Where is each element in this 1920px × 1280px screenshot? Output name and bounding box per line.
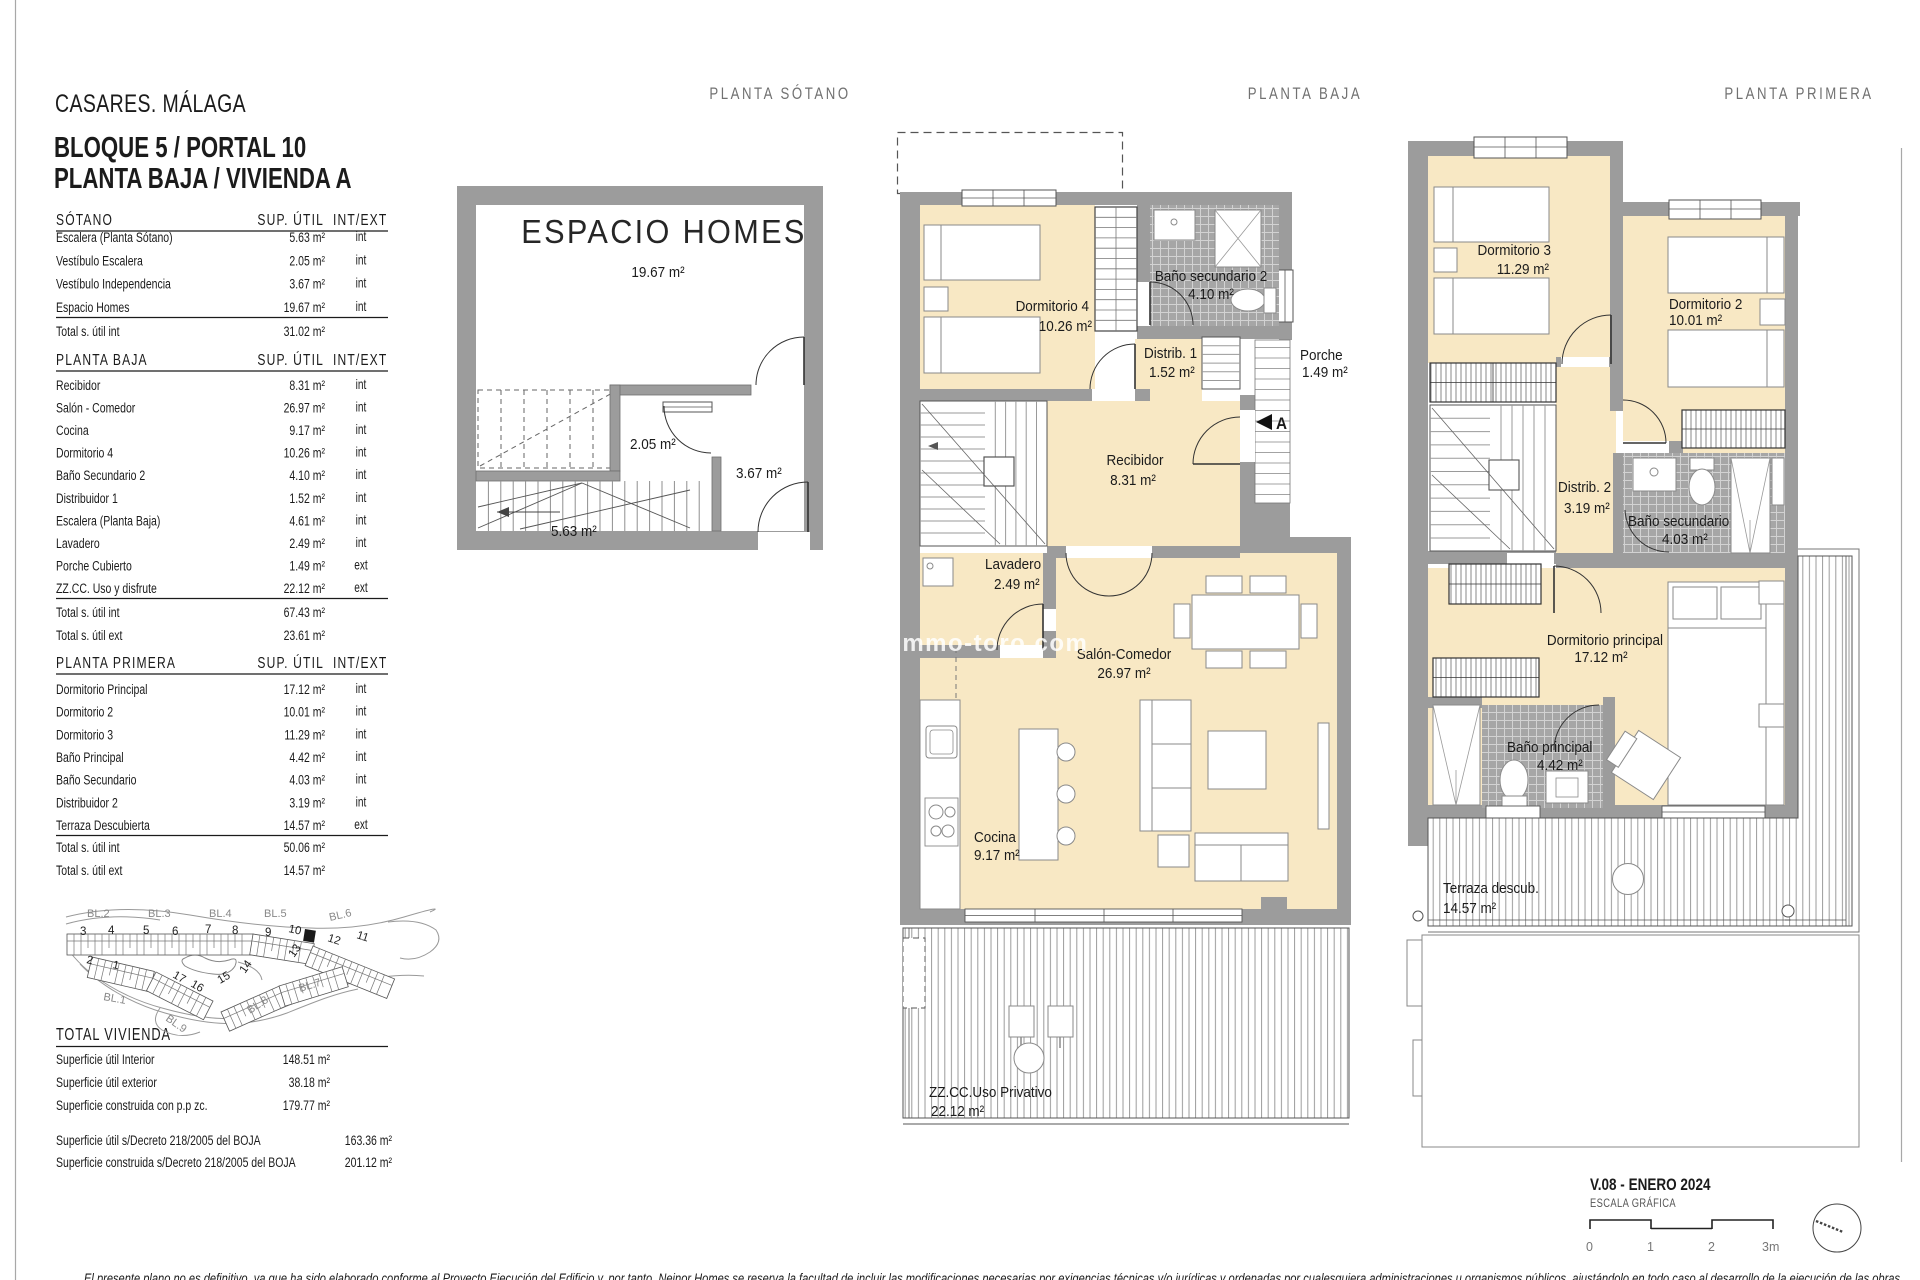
svg-text:9: 9 <box>265 927 271 939</box>
svg-text:Distrib. 2: Distrib. 2 <box>1558 479 1611 496</box>
svg-text:ZZ.CC.Uso Privativo: ZZ.CC.Uso Privativo <box>929 1084 1052 1101</box>
svg-text:Baño secundario 2: Baño secundario 2 <box>1155 268 1267 285</box>
svg-text:Baño secundario: Baño secundario <box>1628 513 1729 530</box>
svg-text:PLANTA BAJA / VIVIENDA A: PLANTA BAJA / VIVIENDA A <box>54 163 352 194</box>
svg-text:38.18 m²: 38.18 m² <box>289 1075 330 1091</box>
svg-text:Baño Principal: Baño Principal <box>56 750 124 766</box>
svg-text:14.57 m²: 14.57 m² <box>1443 900 1496 917</box>
svg-text:1.52 m²: 1.52 m² <box>1149 364 1195 381</box>
svg-text:Espacio Homes: Espacio Homes <box>56 300 129 316</box>
svg-text:26.97 m²: 26.97 m² <box>284 400 325 416</box>
svg-text:ZZ.CC. Uso y disfrute: ZZ.CC. Uso y disfrute <box>56 581 157 597</box>
svg-text:1.49 m²: 1.49 m² <box>289 558 325 574</box>
svg-text:67.43 m²: 67.43 m² <box>284 605 325 621</box>
svg-text:31.02 m²: 31.02 m² <box>284 324 325 340</box>
svg-text:int: int <box>356 681 367 697</box>
svg-text:Vestíbulo Independencia: Vestíbulo Independencia <box>56 276 171 292</box>
svg-text:PLANTA SÓTANO: PLANTA SÓTANO <box>709 85 850 104</box>
svg-text:5.63 m²: 5.63 m² <box>551 523 597 540</box>
svg-text:201.12 m²: 201.12 m² <box>345 1155 392 1171</box>
svg-text:A: A <box>1276 414 1287 433</box>
svg-text:Total s. útil int: Total s. útil int <box>56 605 120 621</box>
svg-text:BL.4: BL.4 <box>209 908 232 920</box>
svg-text:int: int <box>356 489 367 505</box>
svg-text:4.03 m²: 4.03 m² <box>289 772 325 788</box>
svg-text:ext: ext <box>354 557 368 573</box>
svg-text:SUP. ÚTIL: SUP. ÚTIL <box>257 211 324 229</box>
svg-text:El presente plano no es defini: El presente plano no es definitivo, ya q… <box>84 1271 1900 1280</box>
svg-text:17.12 m²: 17.12 m² <box>1574 649 1627 666</box>
svg-text:Baño Secundario: Baño Secundario <box>56 772 137 788</box>
svg-text:2.05 m²: 2.05 m² <box>630 436 676 453</box>
svg-text:int: int <box>356 771 367 787</box>
svg-text:23.61 m²: 23.61 m² <box>284 628 325 644</box>
svg-text:Dormitorio 3: Dormitorio 3 <box>56 727 113 743</box>
svg-text:CASARES. MÁLAGA: CASARES. MÁLAGA <box>55 90 246 118</box>
svg-text:INT/EXT: INT/EXT <box>333 211 387 229</box>
svg-text:TOTAL VIVIENDA: TOTAL VIVIENDA <box>56 1025 171 1044</box>
svg-text:2.49 m²: 2.49 m² <box>289 535 325 551</box>
svg-text:Distribuidor 1: Distribuidor 1 <box>56 490 118 506</box>
svg-text:Lavadero: Lavadero <box>985 556 1041 573</box>
svg-text:Dormitorio 2: Dormitorio 2 <box>1669 296 1742 313</box>
svg-text:Vestíbulo Escalera: Vestíbulo Escalera <box>56 253 143 269</box>
svg-text:19.67 m²: 19.67 m² <box>631 264 684 281</box>
svg-text:int: int <box>356 229 367 245</box>
svg-text:Baño principal: Baño principal <box>1507 739 1592 756</box>
svg-text:int: int <box>356 299 367 315</box>
svg-text:3.19 m²: 3.19 m² <box>1564 500 1610 517</box>
svg-text:Dormitorio principal: Dormitorio principal <box>1547 632 1663 649</box>
svg-text:int: int <box>356 749 367 765</box>
svg-text:Cocina: Cocina <box>974 829 1016 846</box>
svg-text:26.97 m²: 26.97 m² <box>1097 665 1150 682</box>
svg-text:Dormitorio 4: Dormitorio 4 <box>1016 298 1089 315</box>
svg-text:Superficie útil s/Decreto 218/: Superficie útil s/Decreto 218/2005 del B… <box>56 1133 261 1149</box>
svg-text:INT/EXT: INT/EXT <box>333 654 387 672</box>
svg-text:Distrib. 1: Distrib. 1 <box>1144 345 1197 362</box>
svg-text:Total s. útil int: Total s. útil int <box>56 324 120 340</box>
svg-text:int: int <box>356 534 367 550</box>
svg-text:ext: ext <box>354 817 368 833</box>
svg-text:4: 4 <box>108 925 115 937</box>
svg-text:Dormitorio 3: Dormitorio 3 <box>1478 242 1551 259</box>
svg-text:2.05 m²: 2.05 m² <box>289 253 325 269</box>
svg-text:Superficie útil exterior: Superficie útil exterior <box>56 1075 157 1091</box>
svg-text:ESCALA GRÁFICA: ESCALA GRÁFICA <box>1590 1196 1676 1210</box>
svg-text:Porche: Porche <box>1300 347 1343 364</box>
svg-text:int: int <box>356 512 367 528</box>
svg-text:148.51 m²: 148.51 m² <box>283 1052 330 1068</box>
svg-text:int: int <box>356 794 367 810</box>
svg-text:int: int <box>356 252 367 268</box>
svg-text:4.42 m²: 4.42 m² <box>289 750 325 766</box>
svg-text:PLANTA PRIMERA: PLANTA PRIMERA <box>1724 85 1873 104</box>
svg-text:Terraza descub.: Terraza descub. <box>1443 880 1539 897</box>
svg-text:int: int <box>356 467 367 483</box>
svg-text:int: int <box>356 399 367 415</box>
svg-text:Cocina: Cocina <box>56 423 89 439</box>
svg-text:10.26 m²: 10.26 m² <box>1039 318 1092 335</box>
svg-text:Superficie construida con p.p: Superficie construida con p.p zc. <box>56 1098 208 1114</box>
svg-text:Dormitorio 4: Dormitorio 4 <box>56 445 113 461</box>
svg-text:Salón - Comedor: Salón - Comedor <box>56 400 135 416</box>
svg-text:0: 0 <box>1586 1240 1593 1254</box>
svg-text:BL.2: BL.2 <box>87 908 110 920</box>
svg-text:.immo-toro.com: .immo-toro.com <box>886 630 1088 657</box>
svg-text:V.08 - ENERO 2024: V.08 - ENERO 2024 <box>1590 1176 1711 1195</box>
svg-text:Distribuidor 2: Distribuidor 2 <box>56 795 118 811</box>
svg-text:2: 2 <box>1708 1240 1715 1254</box>
svg-text:Recibidor: Recibidor <box>56 378 100 394</box>
svg-text:Total s. útil int: Total s. útil int <box>56 840 120 856</box>
svg-text:int: int <box>356 377 367 393</box>
svg-text:Total s. útil ext: Total s. útil ext <box>56 628 123 644</box>
svg-text:Terraza Descubierta: Terraza Descubierta <box>56 818 150 834</box>
svg-text:8.31 m²: 8.31 m² <box>289 378 325 394</box>
svg-text:PLANTA PRIMERA: PLANTA PRIMERA <box>56 654 176 672</box>
svg-text:1.49 m²: 1.49 m² <box>1302 364 1348 381</box>
svg-text:4.42 m²: 4.42 m² <box>1537 757 1583 774</box>
svg-text:INT/EXT: INT/EXT <box>333 351 387 369</box>
svg-text:Salón-Comedor: Salón-Comedor <box>1077 646 1172 663</box>
svg-text:10.01 m²: 10.01 m² <box>1669 312 1722 329</box>
svg-text:8: 8 <box>232 925 238 937</box>
svg-text:9.17 m²: 9.17 m² <box>289 423 325 439</box>
svg-text:Porche Cubierto: Porche Cubierto <box>56 558 132 574</box>
svg-text:3.67 m²: 3.67 m² <box>289 276 325 292</box>
svg-text:11.29 m²: 11.29 m² <box>1497 261 1549 278</box>
svg-text:5: 5 <box>143 925 149 937</box>
svg-text:14.57 m²: 14.57 m² <box>284 863 325 879</box>
svg-text:4.61 m²: 4.61 m² <box>289 513 325 529</box>
svg-text:3m: 3m <box>1762 1240 1779 1254</box>
svg-text:1: 1 <box>1647 1240 1654 1254</box>
svg-text:int: int <box>356 422 367 438</box>
svg-text:22.12 m²: 22.12 m² <box>931 1103 984 1120</box>
svg-text:1.52 m²: 1.52 m² <box>289 490 325 506</box>
svg-text:int: int <box>356 703 367 719</box>
svg-text:4.03 m²: 4.03 m² <box>1662 531 1708 548</box>
svg-text:SÓTANO: SÓTANO <box>56 211 113 229</box>
svg-text:PLANTA BAJA: PLANTA BAJA <box>1248 85 1362 104</box>
svg-text:Baño Secundario 2: Baño Secundario 2 <box>56 468 145 484</box>
svg-text:8.31 m²: 8.31 m² <box>1110 472 1156 489</box>
svg-text:BLOQUE 5 / PORTAL 10: BLOQUE 5 / PORTAL 10 <box>54 132 306 163</box>
svg-text:6: 6 <box>172 926 178 938</box>
svg-text:17.12 m²: 17.12 m² <box>284 682 325 698</box>
svg-text:163.36 m²: 163.36 m² <box>345 1133 392 1149</box>
svg-text:4.10 m²: 4.10 m² <box>1188 286 1234 303</box>
svg-text:14.57 m²: 14.57 m² <box>284 818 325 834</box>
svg-text:10.01 m²: 10.01 m² <box>284 704 325 720</box>
svg-text:int: int <box>356 275 367 291</box>
svg-text:Dormitorio 2: Dormitorio 2 <box>56 704 113 720</box>
svg-text:50.06 m²: 50.06 m² <box>284 840 325 856</box>
svg-text:PLANTA BAJA: PLANTA BAJA <box>56 351 148 369</box>
svg-text:ESPACIO HOMES: ESPACIO HOMES <box>521 213 806 250</box>
svg-text:Recibidor: Recibidor <box>1107 452 1164 469</box>
svg-text:9.17 m²: 9.17 m² <box>974 847 1020 864</box>
svg-text:19.67 m²: 19.67 m² <box>284 300 325 316</box>
svg-text:BL.5: BL.5 <box>264 908 287 920</box>
svg-text:ext: ext <box>354 580 368 596</box>
svg-text:4.10 m²: 4.10 m² <box>289 468 325 484</box>
svg-text:10.26 m²: 10.26 m² <box>284 445 325 461</box>
svg-text:SUP. ÚTIL: SUP. ÚTIL <box>257 654 324 672</box>
svg-text:11.29 m²: 11.29 m² <box>284 727 325 743</box>
svg-text:Superficie útil Interior: Superficie útil Interior <box>56 1052 155 1068</box>
svg-text:7: 7 <box>205 924 211 936</box>
svg-text:Superficie construida s/Decret: Superficie construida s/Decreto 218/2005… <box>56 1155 296 1171</box>
svg-text:3.19 m²: 3.19 m² <box>289 795 325 811</box>
svg-text:int: int <box>356 444 367 460</box>
svg-text:Dormitorio Principal: Dormitorio Principal <box>56 682 148 698</box>
svg-text:179.77 m²: 179.77 m² <box>283 1098 330 1114</box>
svg-text:3: 3 <box>80 926 86 938</box>
svg-text:BL.3: BL.3 <box>148 908 171 920</box>
svg-text:5.63 m²: 5.63 m² <box>289 230 325 246</box>
svg-text:SUP. ÚTIL: SUP. ÚTIL <box>257 351 324 369</box>
svg-text:Lavadero: Lavadero <box>56 535 100 551</box>
svg-text:int: int <box>356 726 367 742</box>
svg-text:22.12 m²: 22.12 m² <box>284 581 325 597</box>
svg-text:2.49 m²: 2.49 m² <box>994 576 1040 593</box>
svg-text:Escalera (Planta Baja): Escalera (Planta Baja) <box>56 513 160 529</box>
svg-text:Escalera (Planta Sótano): Escalera (Planta Sótano) <box>56 230 173 246</box>
svg-text:Total s. útil ext: Total s. útil ext <box>56 863 123 879</box>
svg-text:3.67 m²: 3.67 m² <box>736 465 782 482</box>
